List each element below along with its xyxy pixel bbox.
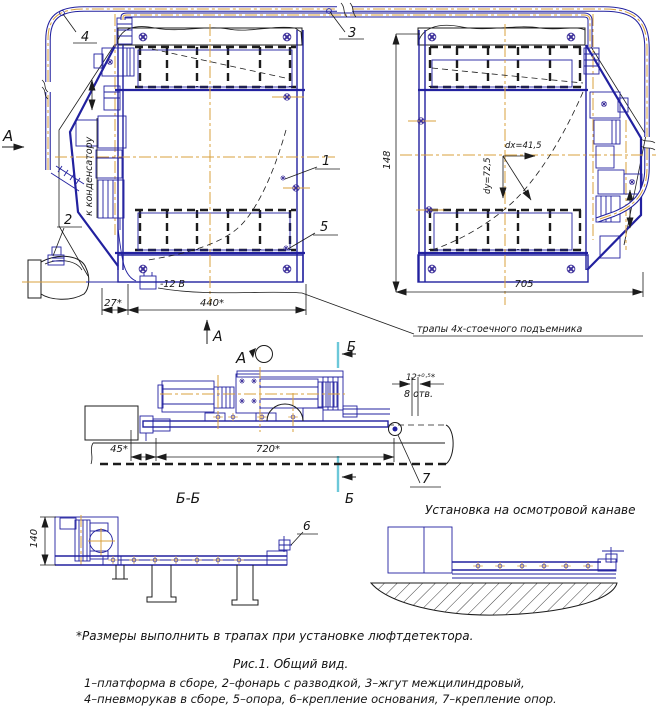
top-crossbar xyxy=(418,28,585,45)
view-a-rotated-symbol: А xyxy=(235,346,273,368)
installation-view: Установка на осмотровой канаве xyxy=(371,503,636,615)
end-bracket xyxy=(598,547,624,571)
support-legs xyxy=(112,565,258,605)
dim-45: 45* xyxy=(110,444,128,455)
torn-hose-end xyxy=(51,166,84,191)
view-a-label: А xyxy=(212,329,223,345)
end-hook xyxy=(267,536,292,565)
bolt-cross-icon xyxy=(283,33,291,41)
dim-440: 440* xyxy=(200,298,224,309)
section-bb-title: Б-Б xyxy=(176,491,200,507)
dy-label: dу=72,5 xyxy=(483,158,493,194)
callout-1: 1 xyxy=(322,154,330,169)
bottom-ramp-rails xyxy=(135,210,296,250)
bolt-cross-icon xyxy=(139,33,147,41)
callout-6-group: 6 xyxy=(291,519,318,545)
dim-27: 27* xyxy=(104,298,122,309)
dim-140: 140 xyxy=(29,517,56,565)
dim-27-440: 27* 440* xyxy=(102,284,306,315)
callout-5: 5 xyxy=(320,220,328,235)
hole-note: 12⁺⁰·⁵* 8 отв. xyxy=(392,373,444,416)
top-ramp-rails xyxy=(135,47,296,87)
callout-7: 7 xyxy=(422,472,431,487)
callout-3: 3 xyxy=(348,26,356,41)
legend-line-2: 4–пневморукав в сборе, 5–опора, 6–крепле… xyxy=(84,692,557,706)
dim-148: 148 xyxy=(382,150,393,169)
callout-4: 4 xyxy=(81,30,89,45)
dx-label: dх=41,5 xyxy=(505,141,541,151)
view-a-label: А xyxy=(2,127,13,145)
captions: *Размеры выполнить в трапах при установк… xyxy=(76,629,557,706)
hole-offset-annotation: dх=41,5 dу=72,5 xyxy=(483,141,541,200)
dim-705: 705 xyxy=(514,279,533,290)
bottom-crossbar xyxy=(418,255,588,282)
section-view-a: А Б Б xyxy=(85,340,453,507)
cable-dashed xyxy=(152,49,290,79)
engineering-drawing-page: -12 В xyxy=(0,0,658,719)
platform-base xyxy=(143,421,388,427)
legend-line-1: 1–платформа в сборе, 2–фонарь с разводко… xyxy=(84,676,525,690)
hatched-ground xyxy=(371,583,617,615)
b-label: Б xyxy=(345,492,354,507)
hole-count-label: 8 отв. xyxy=(404,389,433,400)
ramps-label: трапы 4х-стоечного подъемника xyxy=(417,324,583,335)
figure-title: Рис.1. Общий вид. xyxy=(233,657,348,671)
view-a-up-marker: А xyxy=(207,320,223,345)
rotated-icon xyxy=(256,346,273,363)
condenser-label: к конденсатору xyxy=(84,136,95,216)
callout-6: 6 xyxy=(303,519,311,533)
section-b-top-marker: Б xyxy=(338,340,356,368)
right-plan-view: dх=41,5 dу=72,5 xyxy=(400,14,656,305)
ramp-end-block xyxy=(85,406,138,440)
condenser-note: к конденсатору xyxy=(84,118,97,218)
dim-720: 720* xyxy=(256,444,280,455)
ramps-note: трапы 4х-стоечного подъемника xyxy=(158,288,643,336)
callout-2: 2 xyxy=(64,213,72,228)
dim-140-label: 140 xyxy=(29,529,40,548)
hump-cover xyxy=(267,404,303,421)
view-a-label: А xyxy=(235,349,246,367)
drawing-canvas: -12 В xyxy=(0,0,658,719)
installation-title: Установка на осмотровой канаве xyxy=(425,503,636,517)
view-a-marker-left: А xyxy=(2,127,24,147)
top-ramp-rails xyxy=(430,47,583,87)
dim-45-720: 45* 720* xyxy=(110,430,394,462)
b-label: Б xyxy=(347,340,356,355)
drive-box xyxy=(388,527,452,573)
bottom-ramp-rails xyxy=(430,210,583,250)
platform-mechanism-side xyxy=(140,371,390,441)
hole-dia-label: 12⁺⁰·⁵* xyxy=(406,373,435,383)
callouts: 4 3 1 5 2 xyxy=(53,9,364,256)
intercylinder-harness xyxy=(123,15,590,47)
section-bb-view: Б-Б 140 xyxy=(29,491,318,605)
voltage-label: -12 В xyxy=(160,279,185,290)
footnote: *Размеры выполнить в трапах при установк… xyxy=(76,629,473,643)
